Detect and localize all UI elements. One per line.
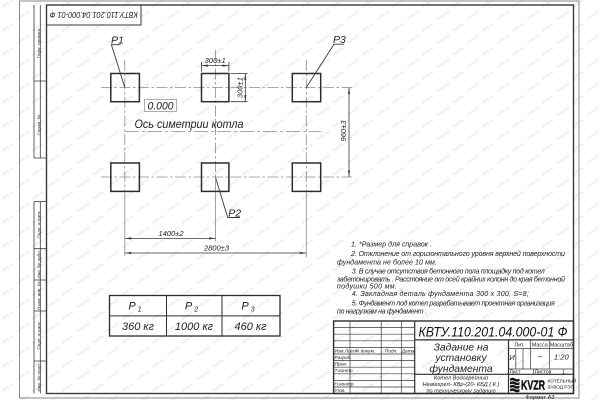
- svg-text:360 кг: 360 кг: [122, 321, 155, 333]
- svg-text:Перв. примен.: Перв. примен.: [37, 28, 42, 59]
- svg-text:460 кг: 460 кг: [234, 321, 267, 333]
- svg-text:4. Закладная деталь фундамент: 4. Закладная деталь фундамента 300 х 300…: [352, 290, 529, 298]
- svg-text:КВТУ.110.201.04.000-01 Ф: КВТУ.110.201.04.000-01 Ф: [49, 10, 137, 19]
- svg-text:Справ. №: Справ. №: [37, 115, 42, 136]
- svg-text:Листов: Листов: [535, 369, 552, 375]
- svg-text:Инв. № подл.: Инв. № подл.: [37, 363, 42, 392]
- svg-text:КОТЕЛЬНЫЙ: КОТЕЛЬНЫЙ: [548, 377, 577, 384]
- svg-text:300±1: 300±1: [205, 56, 226, 65]
- svg-text:1000 кг: 1000 кг: [175, 321, 214, 333]
- svg-text:Heatexpert- КВр-(20- КБД ( К ): Heatexpert- КВр-(20- КБД ( К ): [423, 382, 500, 388]
- svg-text:300±1: 300±1: [236, 77, 245, 98]
- svg-text:Подп. и дата: Подп. и дата: [37, 322, 42, 350]
- svg-text:Разраб.: Разраб.: [335, 355, 352, 361]
- svg-text:Формат А3: Формат А3: [525, 395, 554, 400]
- svg-text:установку: установку: [434, 353, 487, 364]
- svg-text:Масштаб: Масштаб: [550, 342, 573, 348]
- svg-text:КВТУ.110.201.04.000-01 Ф: КВТУ.110.201.04.000-01 Ф: [419, 324, 568, 340]
- svg-text:Взам. инв. №: Взам. инв. №: [37, 281, 42, 310]
- svg-text:Р1: Р1: [111, 35, 124, 47]
- svg-text:Ось симетрии котла: Ось симетрии котла: [135, 119, 244, 131]
- svg-text:3. В случае отсутствия бетонн: 3. В случае отсутствия бетонного пола пл…: [352, 267, 545, 275]
- svg-text:Т.контр.: Т.контр.: [335, 368, 354, 374]
- svg-text:Р2: Р2: [228, 208, 241, 220]
- svg-text:Н.контр.: Н.контр.: [335, 381, 355, 387]
- svg-text:KVZR: KVZR: [521, 377, 545, 392]
- svg-text:960±3: 960±3: [339, 120, 348, 142]
- svg-text:–: –: [538, 352, 543, 361]
- svg-text:Утв.: Утв.: [335, 388, 346, 394]
- svg-text:Изм.Лист: Изм.Лист: [335, 349, 358, 355]
- svg-text:1. *Размер для справок .: 1. *Размер для справок .: [351, 241, 432, 249]
- svg-text:Масса: Масса: [532, 342, 548, 348]
- svg-text:Лит.: Лит.: [515, 342, 525, 348]
- svg-text:2. Отклонение от горизонтальн: 2. Отклонение от горизонтального уровня …: [350, 250, 565, 258]
- svg-text:1:20: 1:20: [554, 353, 570, 362]
- svg-text:Пров.: Пров.: [335, 362, 348, 368]
- svg-text:ЗАВОД РЭП: ЗАВОД РЭП: [548, 385, 574, 390]
- svg-text:И: И: [509, 353, 515, 362]
- svg-text:по нагрузкам на фундамент .: по нагрузкам на фундамент .: [337, 308, 427, 316]
- svg-text:2800±3: 2800±3: [203, 243, 230, 252]
- svg-text:Задание на: Задание на: [434, 342, 489, 353]
- svg-text:1400±2: 1400±2: [158, 229, 184, 238]
- svg-text:N докум.: N докум.: [356, 349, 375, 355]
- svg-text:Подп.: Подп.: [385, 349, 398, 355]
- svg-text:Инв. № дубл.: Инв. № дубл.: [37, 250, 42, 278]
- svg-text:5. Фундамент под котел разраб: 5. Фундамент под котел разрабатывает про…: [352, 299, 555, 307]
- svg-text:0.000: 0.000: [148, 101, 175, 113]
- svg-text:Котел Водогрейный: Котел Водогрейный: [434, 375, 488, 382]
- svg-text:Дата: Дата: [401, 349, 415, 355]
- svg-text:Лист: Лист: [509, 369, 521, 375]
- svg-text:1: 1: [562, 369, 565, 375]
- svg-text:Р3: Р3: [333, 34, 346, 46]
- svg-text:фундамента не более 10 мм.: фундамента не более 10 мм.: [337, 259, 437, 267]
- svg-text:Подп. и дата: Подп. и дата: [37, 211, 42, 239]
- svg-text:по техническому заданию: по техническому заданию: [426, 388, 496, 394]
- svg-text:фундамента: фундамента: [429, 363, 493, 375]
